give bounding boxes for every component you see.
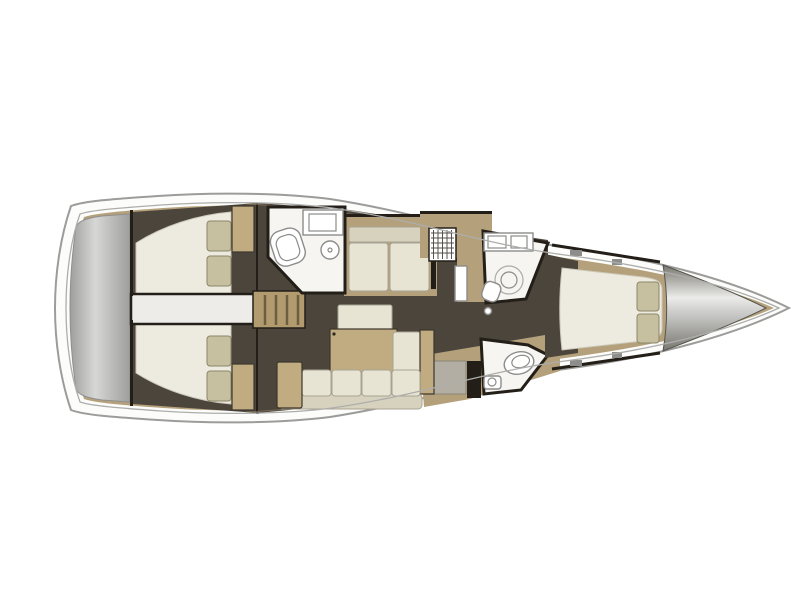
pillow <box>637 282 659 311</box>
galley-counter-sink <box>455 266 467 301</box>
aft-cabin-port <box>133 203 258 296</box>
galley-module <box>431 361 466 394</box>
chaise-armrest <box>420 330 434 394</box>
yacht-floor-plan-canvas <box>0 0 800 600</box>
door-knob <box>485 308 492 315</box>
pillow <box>207 336 231 366</box>
companionway-steps <box>253 291 305 328</box>
sofa-cushion <box>362 370 391 396</box>
sofa-armrest <box>277 362 302 408</box>
bulkhead-wall <box>130 320 133 406</box>
salon-table <box>330 329 397 373</box>
pillow <box>207 371 231 401</box>
table-detail <box>332 332 335 335</box>
settee-backrest <box>349 227 429 242</box>
wardrobe <box>232 364 254 410</box>
aft-corridor <box>131 294 258 324</box>
sofa-cushion <box>302 370 331 396</box>
deck-hardware <box>570 250 582 256</box>
round-sink <box>321 241 339 259</box>
bulkhead-wall <box>130 210 133 296</box>
stern-swim-platform <box>70 214 130 402</box>
pillow <box>207 256 231 286</box>
settee-cushion <box>349 243 388 291</box>
sofa-cushion <box>332 370 361 396</box>
yacht-floor-plan <box>0 0 800 600</box>
wardrobe <box>232 206 254 252</box>
bench-seat <box>338 305 392 330</box>
pillow <box>637 314 659 343</box>
aft-cabin-starboard <box>133 320 258 413</box>
deck-hardware <box>570 360 582 366</box>
pillow <box>207 221 231 251</box>
galley-wall <box>420 211 492 214</box>
